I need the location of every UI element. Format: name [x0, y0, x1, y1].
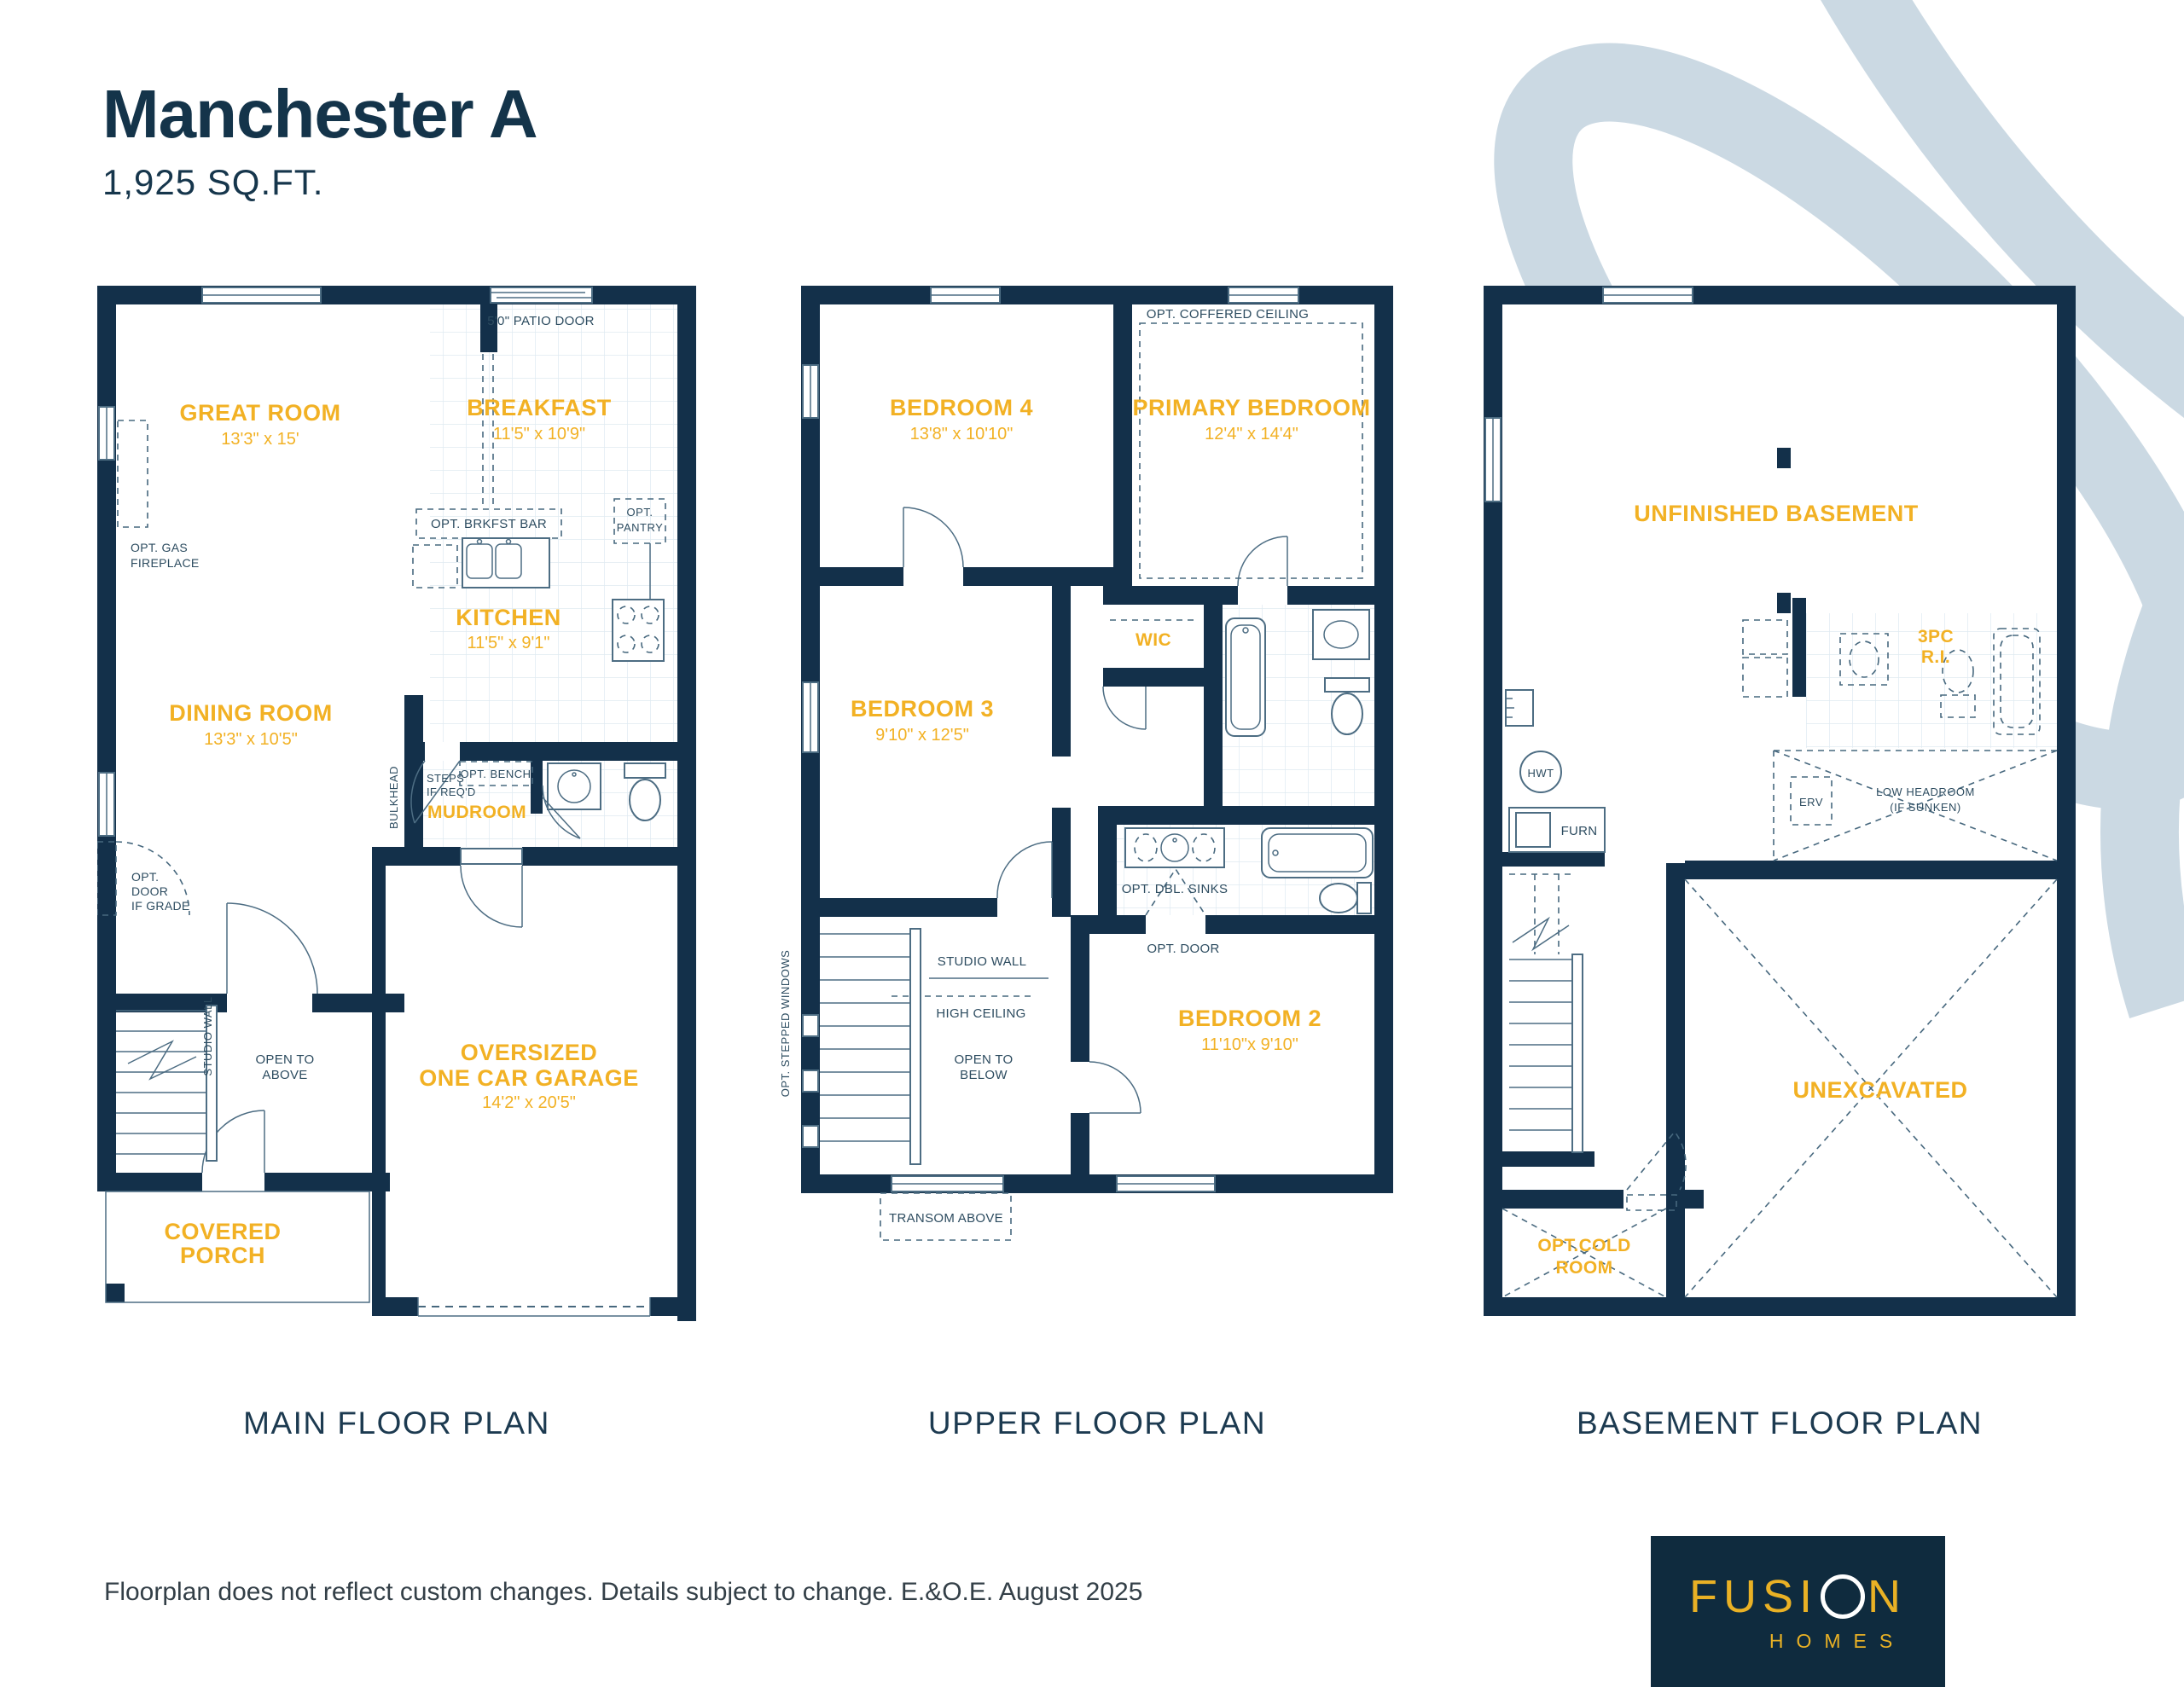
- logo-brand-pre: FUSI: [1689, 1570, 1818, 1623]
- note-bulkhead: BULKHEAD: [387, 766, 400, 829]
- stepped-window-icon: [803, 1070, 818, 1092]
- note-open-above-1: OPEN TO: [255, 1052, 314, 1067]
- room-label-great-room: GREAT ROOM: [180, 400, 341, 426]
- powder-sink-icon: [548, 763, 601, 809]
- room-label-ri: R.I.: [1921, 647, 1950, 667]
- room-label-wic: WIC: [1136, 630, 1171, 650]
- note-patio-door: 5'0" PATIO DOOR: [487, 314, 595, 328]
- logo-brand-post: N: [1867, 1570, 1907, 1623]
- note-hwt: HWT: [1527, 767, 1554, 780]
- window-icon: [1603, 287, 1693, 303]
- note-open-below-2: BELOW: [960, 1068, 1008, 1082]
- upper-floor-plan: BEDROOM 4 13'8" x 10'10" PRIMARY BEDROOM…: [763, 286, 1393, 1335]
- window-icon: [99, 407, 114, 460]
- room-label-cold-1: OPT.COLD: [1537, 1236, 1630, 1255]
- primary-sink-icon: [1313, 610, 1369, 659]
- fusion-homes-logo: FUSI N HOMES: [1651, 1536, 1945, 1687]
- room-dims-bed3: 9'10" x 12'5": [875, 726, 969, 745]
- patio-door-icon: [491, 287, 592, 303]
- window-icon: [803, 682, 818, 752]
- note-studio-wall: STUDIO WALL: [938, 954, 1026, 969]
- room-label-bed2: BEDROOM 2: [1178, 1006, 1321, 1031]
- logo-sub: HOMES: [1691, 1630, 1905, 1653]
- note-pantry-2: PANTRY: [617, 521, 664, 534]
- room-label-porch-2: PORCH: [180, 1243, 265, 1268]
- window-icon: [1485, 418, 1501, 501]
- window-icon: [1117, 1176, 1215, 1191]
- primary-tub-icon: [1226, 618, 1265, 736]
- note-studio-wall: STUDIO WALL: [201, 996, 214, 1075]
- room-label-porch-1: COVERED: [164, 1219, 281, 1244]
- logo-brand: FUSI N: [1689, 1570, 1907, 1623]
- stepped-window-icon: [803, 1126, 818, 1147]
- note-furn: FURN: [1561, 824, 1598, 838]
- note-open-below-1: OPEN TO: [954, 1052, 1013, 1067]
- note-dbl-sinks: OPT. DBL. SINKS: [1122, 882, 1228, 896]
- window-icon: [931, 287, 1000, 303]
- room-label-mudroom: MUDROOM: [427, 803, 526, 822]
- main-plan-title: MAIN FLOOR PLAN: [97, 1406, 696, 1441]
- note-opt-gas-1: OPT. GAS: [131, 541, 188, 554]
- note-erv: ERV: [1799, 796, 1823, 809]
- room-dims-breakfast: 11'5" x 10'9": [493, 425, 585, 443]
- note-opt-door-1: OPT.: [131, 870, 159, 884]
- room-label-unexcavated: UNEXCAVATED: [1792, 1077, 1967, 1103]
- room-label-garage-1: OVERSIZED: [461, 1040, 598, 1065]
- room-dims-dining: 13'3" x 10'5": [204, 730, 298, 749]
- stepped-window-icon: [803, 1015, 818, 1036]
- upper-plan-title: UPPER FLOOR PLAN: [801, 1406, 1393, 1441]
- floorplan-sheet: { "header": { "title": "Manchester A", "…: [0, 0, 2184, 1687]
- room-label-garage-2: ONE CAR GARAGE: [419, 1065, 639, 1091]
- window-icon: [803, 365, 818, 418]
- note-steps-1: STEPS: [427, 772, 464, 785]
- note-pantry-1: OPT.: [627, 506, 653, 519]
- note-opt-gas-2: FIREPLACE: [131, 556, 200, 570]
- page-title: Manchester A: [102, 75, 537, 154]
- note-high-ceiling: HIGH CEILING: [936, 1006, 1025, 1021]
- note-coffered: OPT. COFFERED CEILING: [1147, 307, 1310, 322]
- note-brkfst-bar: OPT. BRKFST BAR: [431, 517, 547, 531]
- note-low-headroom-2: (IF SUNKEN): [1890, 801, 1961, 814]
- logo-o-ring-icon: [1821, 1574, 1865, 1619]
- room-dims-garage: 14'2" x 20'5": [482, 1093, 576, 1112]
- room-label-primary: PRIMARY BEDROOM: [1132, 395, 1370, 420]
- room-label-bed4: BEDROOM 4: [890, 395, 1033, 420]
- room-label-bed3: BEDROOM 3: [851, 696, 994, 722]
- note-open-above-2: ABOVE: [262, 1068, 307, 1082]
- square-footage: 1,925 SQ.FT.: [102, 162, 537, 203]
- note-stepped-windows: OPT. STEPPED WINDOWS: [779, 950, 792, 1098]
- room-label-kitchen: KITCHEN: [456, 605, 561, 630]
- window-icon: [1228, 287, 1298, 303]
- room-dims-bed4: 13'8" x 10'10": [910, 425, 1014, 443]
- room-dims-kitchen: 11'5" x 9'1": [467, 634, 549, 652]
- main-floor-plan: GREAT ROOM 13'3" x 15' BREAKFAST 11'5" x…: [97, 286, 696, 1335]
- kitchen-counter: [462, 538, 549, 588]
- window-icon: [99, 773, 114, 836]
- note-transom: TRANSOM ABOVE: [889, 1211, 1003, 1226]
- room-dims-bed2: 11'10"x 9'10": [1201, 1035, 1298, 1054]
- electrical-panel-icon: [1506, 690, 1533, 726]
- window-icon: [202, 287, 321, 303]
- room-dims-great-room: 13'3" x 15': [221, 430, 299, 449]
- note-opt-door-3: IF GRADE: [131, 899, 190, 913]
- main-bath-toilet-icon: [1320, 883, 1371, 913]
- room-label-unfinished: UNFINISHED BASEMENT: [1634, 501, 1919, 526]
- main-bath-tub-icon: [1262, 828, 1373, 878]
- room-label-3pc: 3PC: [1918, 627, 1954, 646]
- note-opt-door-2: DOOR: [131, 884, 168, 898]
- room-label-dining: DINING ROOM: [169, 700, 333, 726]
- window-icon: [892, 1176, 1003, 1191]
- note-low-headroom-1: LOW HEADROOM: [1876, 786, 1975, 798]
- basement-plan-title: BASEMENT FLOOR PLAN: [1484, 1406, 2076, 1441]
- note-opt-door: OPT. DOOR: [1147, 942, 1219, 956]
- room-label-cold-2: ROOM: [1556, 1258, 1613, 1278]
- header: Manchester A 1,925 SQ.FT.: [102, 75, 537, 203]
- note-bench: OPT. BENCH: [460, 768, 531, 780]
- note-steps-2: IF REQ'D: [427, 786, 476, 798]
- basement-floor-plan: UNFINISHED BASEMENT 3PC R.I. HWT ERV FUR…: [1484, 286, 2076, 1335]
- disclaimer: Floorplan does not reflect custom change…: [104, 1578, 1142, 1607]
- room-dims-primary: 12'4" x 14'4": [1205, 425, 1298, 443]
- main-bath-vanity: [1125, 828, 1224, 867]
- room-label-breakfast: BREAKFAST: [467, 395, 612, 420]
